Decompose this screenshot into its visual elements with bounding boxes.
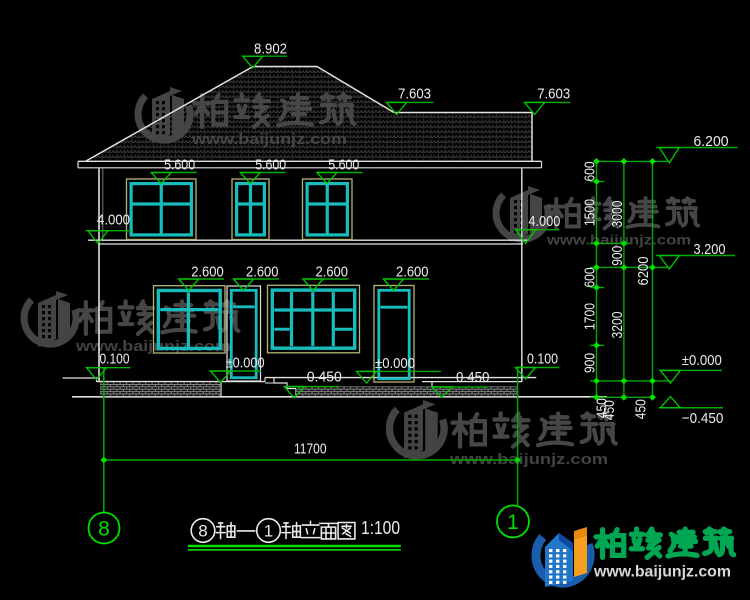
svg-text:8: 8 bbox=[198, 522, 207, 541]
svg-text:600: 600 bbox=[583, 268, 599, 288]
svg-text:5.600: 5.600 bbox=[255, 157, 286, 174]
svg-text:900: 900 bbox=[610, 246, 626, 266]
svg-text:3.200: 3.200 bbox=[694, 241, 726, 258]
svg-text:0.450: 0.450 bbox=[456, 369, 490, 386]
svg-text:0.100: 0.100 bbox=[527, 350, 558, 367]
svg-text:600: 600 bbox=[583, 162, 599, 182]
svg-text:2.600: 2.600 bbox=[191, 263, 224, 280]
svg-text:www.baijunjz.com: www.baijunjz.com bbox=[546, 232, 691, 247]
svg-text:7.603: 7.603 bbox=[537, 86, 570, 103]
svg-text:8.902: 8.902 bbox=[254, 40, 287, 57]
svg-text:1: 1 bbox=[507, 511, 519, 534]
svg-text:900: 900 bbox=[583, 353, 599, 373]
svg-text:5.600: 5.600 bbox=[164, 157, 195, 174]
svg-text:450: 450 bbox=[602, 400, 618, 420]
svg-text:±0.000: ±0.000 bbox=[226, 354, 265, 371]
svg-text:7.603: 7.603 bbox=[398, 86, 431, 103]
svg-text:3200: 3200 bbox=[610, 312, 626, 339]
svg-text:1:100: 1:100 bbox=[361, 518, 400, 538]
svg-text:8: 8 bbox=[98, 518, 110, 541]
svg-text:4.000: 4.000 bbox=[97, 212, 130, 229]
svg-text:2.600: 2.600 bbox=[396, 263, 429, 280]
svg-text:4.000: 4.000 bbox=[528, 213, 560, 230]
svg-text:1500: 1500 bbox=[583, 199, 599, 226]
svg-text:2.600: 2.600 bbox=[316, 263, 349, 280]
svg-text:−0.450: −0.450 bbox=[682, 410, 724, 427]
svg-text:2.600: 2.600 bbox=[246, 263, 279, 280]
svg-text:www.baijunjz.com: www.baijunjz.com bbox=[593, 564, 731, 581]
svg-text:450: 450 bbox=[634, 399, 650, 419]
svg-text:±0.000: ±0.000 bbox=[375, 355, 415, 372]
svg-text:6200: 6200 bbox=[636, 257, 652, 286]
svg-text:6.200: 6.200 bbox=[694, 133, 729, 150]
svg-text:5.600: 5.600 bbox=[328, 157, 359, 174]
svg-text:0.450: 0.450 bbox=[307, 368, 342, 385]
svg-text:www.baijunjz.com: www.baijunjz.com bbox=[191, 132, 347, 148]
svg-text:±0.000: ±0.000 bbox=[682, 352, 722, 369]
svg-text:11700: 11700 bbox=[294, 441, 327, 458]
svg-text:1700: 1700 bbox=[583, 303, 599, 330]
svg-text:3000: 3000 bbox=[610, 201, 626, 228]
svg-text:1: 1 bbox=[264, 522, 273, 541]
svg-text:0.100: 0.100 bbox=[100, 350, 130, 367]
